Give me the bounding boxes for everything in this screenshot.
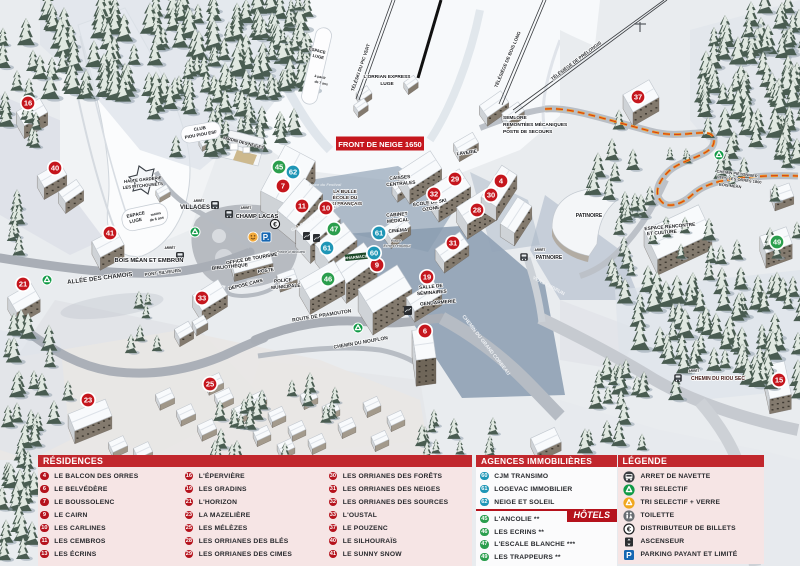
- svg-text:PATINOIRE: PATINOIRE: [576, 213, 603, 219]
- svg-text:FRONT DE NEIGE 1650: FRONT DE NEIGE 1650: [338, 140, 422, 149]
- svg-text:15: 15: [775, 376, 783, 385]
- svg-text:P: P: [626, 550, 632, 560]
- svg-text:61: 61: [323, 244, 331, 253]
- svg-text:32: 32: [430, 190, 438, 199]
- svg-text:BOIS MÉAN ET EMBRUN: BOIS MÉAN ET EMBRUN: [115, 256, 184, 264]
- svg-text:31: 31: [449, 239, 457, 248]
- svg-text:41: 41: [106, 229, 114, 238]
- svg-text:33: 33: [198, 294, 206, 303]
- svg-text:ARRÊT: ARRÊT: [241, 205, 252, 210]
- svg-text:ARRÊT: ARRÊT: [689, 368, 700, 373]
- svg-text:23: 23: [84, 396, 92, 405]
- svg-text:62: 62: [289, 168, 297, 177]
- svg-text:47: 47: [330, 225, 338, 234]
- svg-text:9: 9: [375, 261, 379, 270]
- svg-text:SEMLORE: SEMLORE: [503, 115, 528, 121]
- svg-text:29: 29: [451, 175, 459, 184]
- svg-text:19: 19: [423, 273, 431, 282]
- svg-text:LUGE: LUGE: [380, 81, 394, 87]
- svg-text:25: 25: [206, 380, 214, 389]
- svg-text:7: 7: [281, 182, 285, 191]
- svg-text:ARRÊT: ARRÊT: [165, 245, 176, 250]
- svg-text:VILLAGES: VILLAGES: [180, 205, 210, 211]
- svg-text:Place du Festival: Place du Festival: [309, 182, 342, 187]
- svg-text:60: 60: [370, 249, 378, 258]
- svg-text:46: 46: [324, 275, 332, 284]
- svg-text:11: 11: [298, 202, 306, 211]
- svg-text:L'ORRIAN EXPRESS: L'ORRIAN EXPRESS: [364, 74, 412, 80]
- svg-text:P.: P.: [263, 233, 270, 242]
- svg-text:CHAMP LACAS: CHAMP LACAS: [236, 214, 279, 220]
- svg-text:28: 28: [473, 206, 481, 215]
- svg-text:ARRÊT: ARRÊT: [535, 247, 546, 252]
- svg-text:LA BULLE: LA BULLE: [333, 189, 357, 195]
- svg-text:40: 40: [51, 164, 59, 173]
- svg-text:49: 49: [773, 238, 781, 247]
- svg-text:61: 61: [375, 229, 383, 238]
- svg-text:Ernest Hodoul: Ernest Hodoul: [383, 243, 411, 248]
- svg-text:37: 37: [634, 93, 642, 102]
- svg-text:16: 16: [24, 99, 32, 108]
- svg-text:6: 6: [423, 327, 427, 336]
- svg-text:21: 21: [19, 280, 27, 289]
- svg-text:CHEMIN DU RIOU SEC: CHEMIN DU RIOU SEC: [691, 376, 745, 382]
- svg-text:POSTE DE SECOURS: POSTE DE SECOURS: [503, 129, 553, 135]
- svg-text:PATINOIRE: PATINOIRE: [536, 255, 563, 261]
- svg-text:10: 10: [322, 204, 330, 213]
- svg-text:ARRÊT: ARRÊT: [194, 198, 205, 203]
- svg-text:€: €: [273, 221, 277, 228]
- svg-text:30: 30: [487, 191, 495, 200]
- svg-text:45: 45: [275, 163, 283, 172]
- svg-text:Place d'accueil: Place d'accueil: [277, 249, 306, 254]
